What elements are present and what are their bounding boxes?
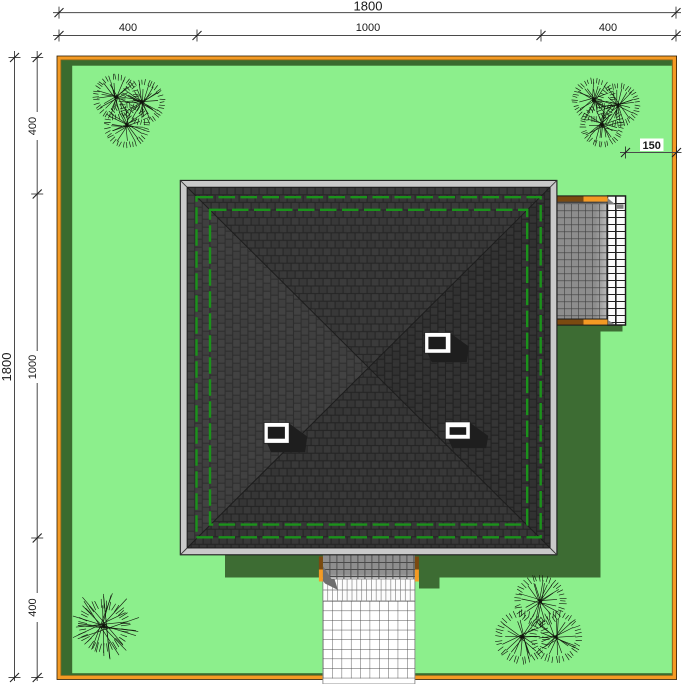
svg-text:400: 400 (119, 22, 137, 34)
svg-text:1800: 1800 (354, 0, 383, 14)
svg-text:400: 400 (27, 117, 39, 135)
svg-text:1800: 1800 (0, 353, 14, 382)
svg-text:150: 150 (643, 140, 661, 152)
svg-text:1000: 1000 (356, 22, 380, 34)
svg-text:400: 400 (599, 22, 617, 34)
svg-text:400: 400 (27, 598, 39, 616)
svg-text:1000: 1000 (27, 355, 39, 379)
